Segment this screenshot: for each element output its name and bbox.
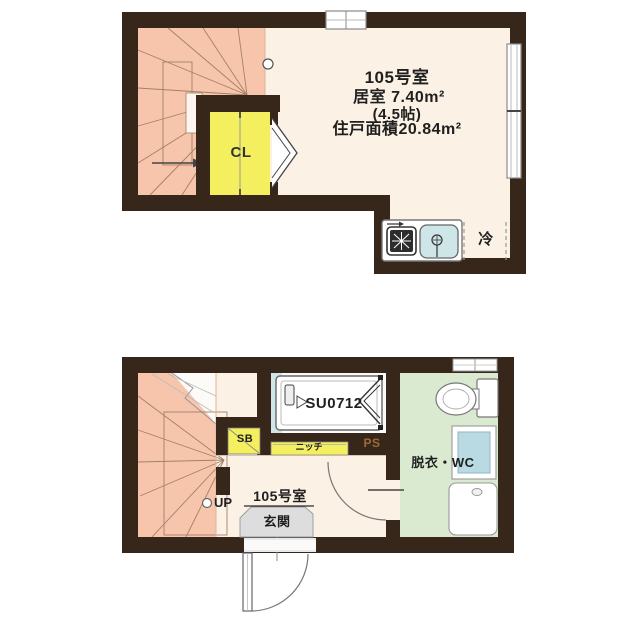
shower-head-icon	[285, 385, 294, 405]
toilet-tank	[477, 379, 498, 417]
washbasin-icon	[452, 426, 496, 479]
entrance-door-swing-arc	[251, 554, 308, 611]
kitchen-counter	[382, 220, 462, 261]
wall-shower-bottom	[271, 433, 348, 442]
staircase-1f	[138, 373, 227, 537]
handrail-post-icon	[263, 59, 273, 69]
stove-burner-glyph	[392, 232, 411, 250]
wall-sb-top	[216, 417, 262, 428]
wall-washroom-mid	[386, 455, 400, 480]
shoe-box-label: SB	[237, 434, 253, 446]
refrigerator-label: 冷	[478, 232, 494, 248]
entrance-label: 玄関	[263, 515, 290, 529]
window-right-2f	[507, 44, 521, 178]
entrance-opening	[244, 538, 316, 552]
window-top-washroom	[453, 359, 497, 371]
washer-pan-icon	[449, 483, 497, 535]
floorplan-drawing	[0, 0, 640, 639]
wall-washroom-lower	[386, 520, 400, 537]
pipe-space-label: PS	[363, 437, 380, 450]
unit-number-label-2f: 105号室	[365, 69, 430, 87]
total-area-label: 住戸面積20.84m²	[332, 122, 461, 139]
closet-wall-left	[196, 95, 210, 211]
door-hinge-top	[378, 375, 383, 380]
unit-number-label-1f: 105号室	[253, 489, 307, 504]
toilet-bowl	[436, 383, 476, 415]
stairs-up-label: UP	[214, 496, 232, 510]
room-area-label: 居室 7.40m²	[353, 90, 445, 107]
window-top-2f	[326, 11, 366, 29]
washroom-label: 脱衣・WC	[411, 456, 474, 470]
floorplan-page: 105号室 居室 7.40m² (4.5帖) 住戸面積20.84m² CL 冷 …	[0, 0, 640, 639]
wall-washroom-upper	[386, 357, 400, 457]
floorplan-2f	[122, 11, 526, 274]
closet-label: CL	[231, 145, 252, 161]
niche-label: ニッチ	[295, 443, 322, 452]
door-hinge-bottom	[378, 425, 383, 430]
wall-stair-stub	[216, 467, 230, 495]
shower-unit-label: SU0712	[305, 396, 362, 412]
newel-post-icon	[203, 499, 212, 508]
